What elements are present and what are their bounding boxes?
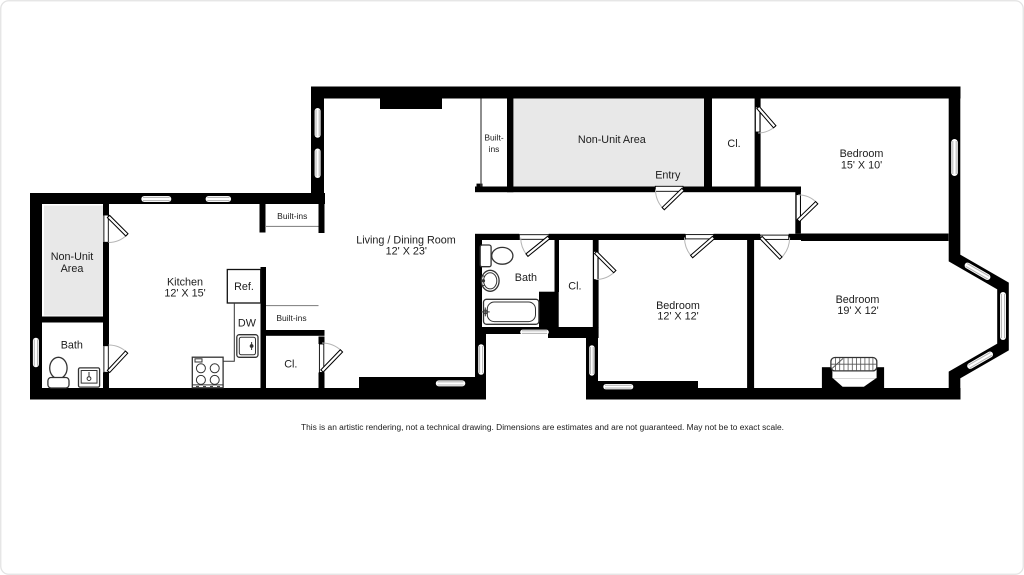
svg-text:Built-ins: Built-ins	[276, 313, 306, 323]
svg-text:19' X 12': 19' X 12'	[837, 305, 878, 317]
svg-text:This is an artistic rendering,: This is an artistic rendering, not a tec…	[301, 423, 784, 432]
svg-text:Entry: Entry	[655, 170, 681, 182]
svg-text:Bedroom: Bedroom	[840, 148, 884, 160]
svg-text:Bath: Bath	[515, 272, 537, 284]
svg-text:Built-ins: Built-ins	[277, 211, 307, 221]
svg-text:Area: Area	[61, 263, 84, 275]
svg-text:12' X 12': 12' X 12'	[657, 311, 698, 323]
svg-text:Cl.: Cl.	[727, 138, 740, 150]
svg-text:12' X 23': 12' X 23'	[386, 246, 427, 258]
svg-text:Non-Unit Area: Non-Unit Area	[578, 134, 646, 146]
svg-text:ins: ins	[489, 144, 500, 154]
svg-text:Cl.: Cl.	[284, 359, 297, 371]
svg-text:Built-: Built-	[484, 132, 504, 142]
svg-text:12' X 15': 12' X 15'	[164, 288, 205, 300]
svg-text:Bath: Bath	[61, 340, 83, 352]
svg-text:Cl.: Cl.	[568, 281, 581, 293]
svg-text:DW: DW	[238, 317, 257, 329]
svg-text:Non-Unit: Non-Unit	[51, 251, 94, 263]
svg-text:Ref.: Ref.	[234, 281, 254, 293]
svg-text:15' X 10': 15' X 10'	[841, 159, 882, 171]
